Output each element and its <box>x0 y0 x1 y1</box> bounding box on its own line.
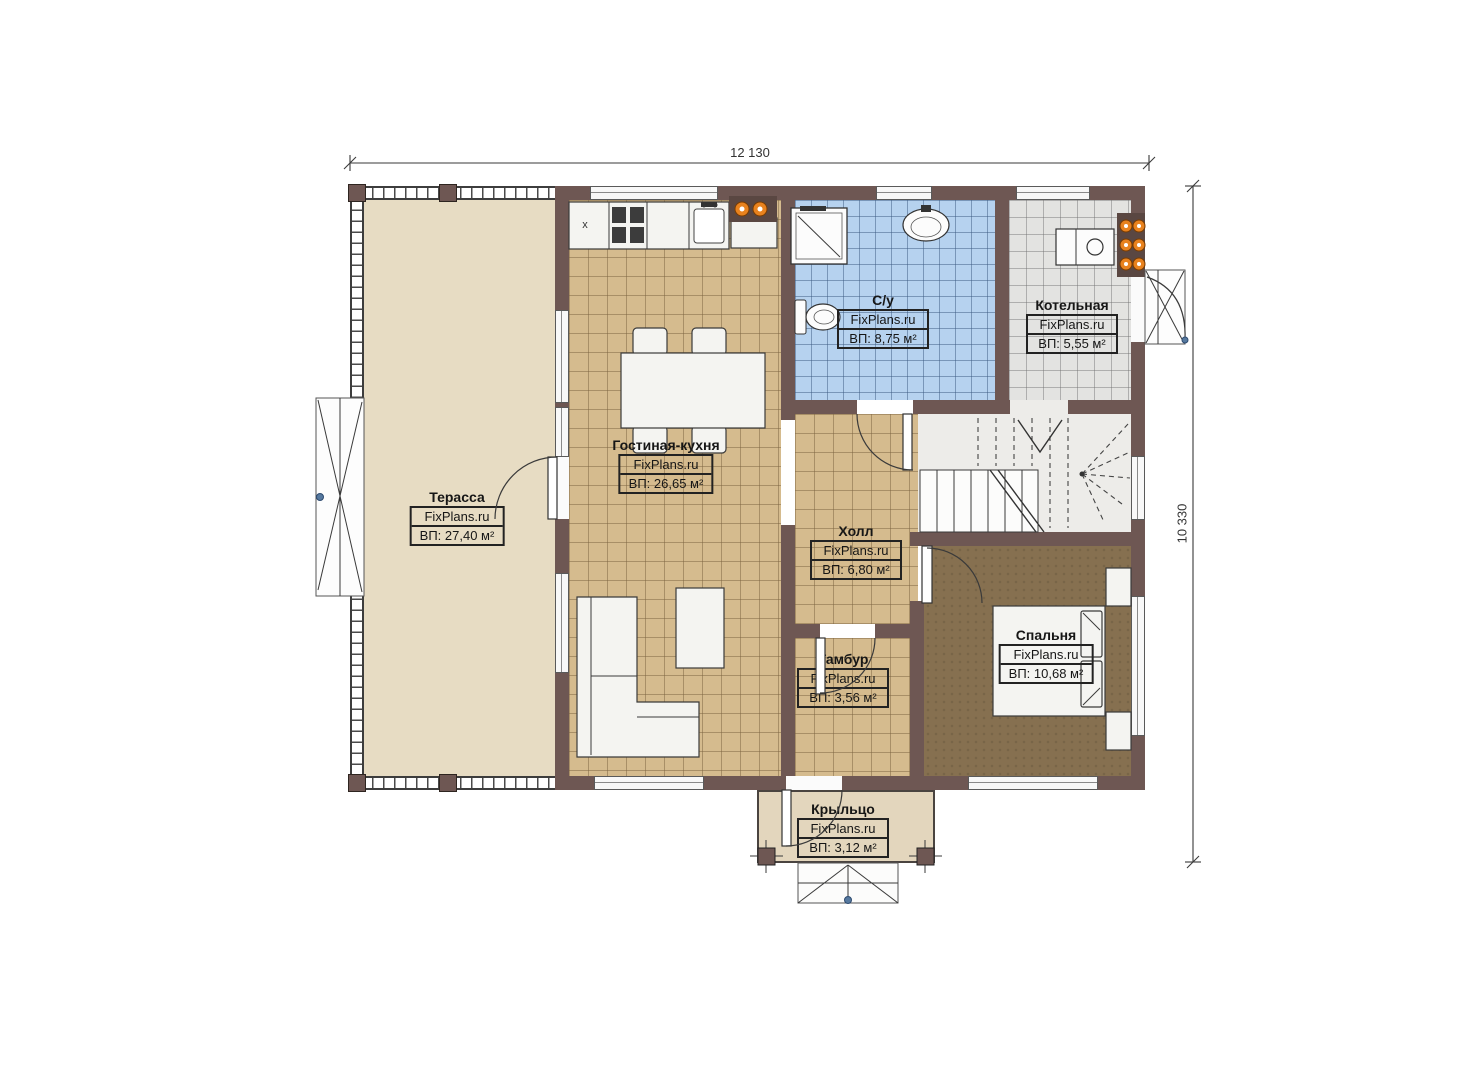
door-entrance <box>782 790 842 846</box>
door-boiler-exterior <box>1147 277 1188 343</box>
dimension-width-label: 12 130 <box>700 145 800 160</box>
door-bathroom <box>857 414 913 470</box>
door-terrace <box>495 457 557 519</box>
door-bedroom <box>922 546 982 603</box>
dimension-height-label: 10 330 <box>1175 484 1190 564</box>
linework-layer <box>0 0 1473 1080</box>
door-vestibule <box>816 638 875 694</box>
floor-plan-canvas: Терасса FixPlans.ru ВП: 27,40 м² Гостина… <box>0 0 1473 1080</box>
